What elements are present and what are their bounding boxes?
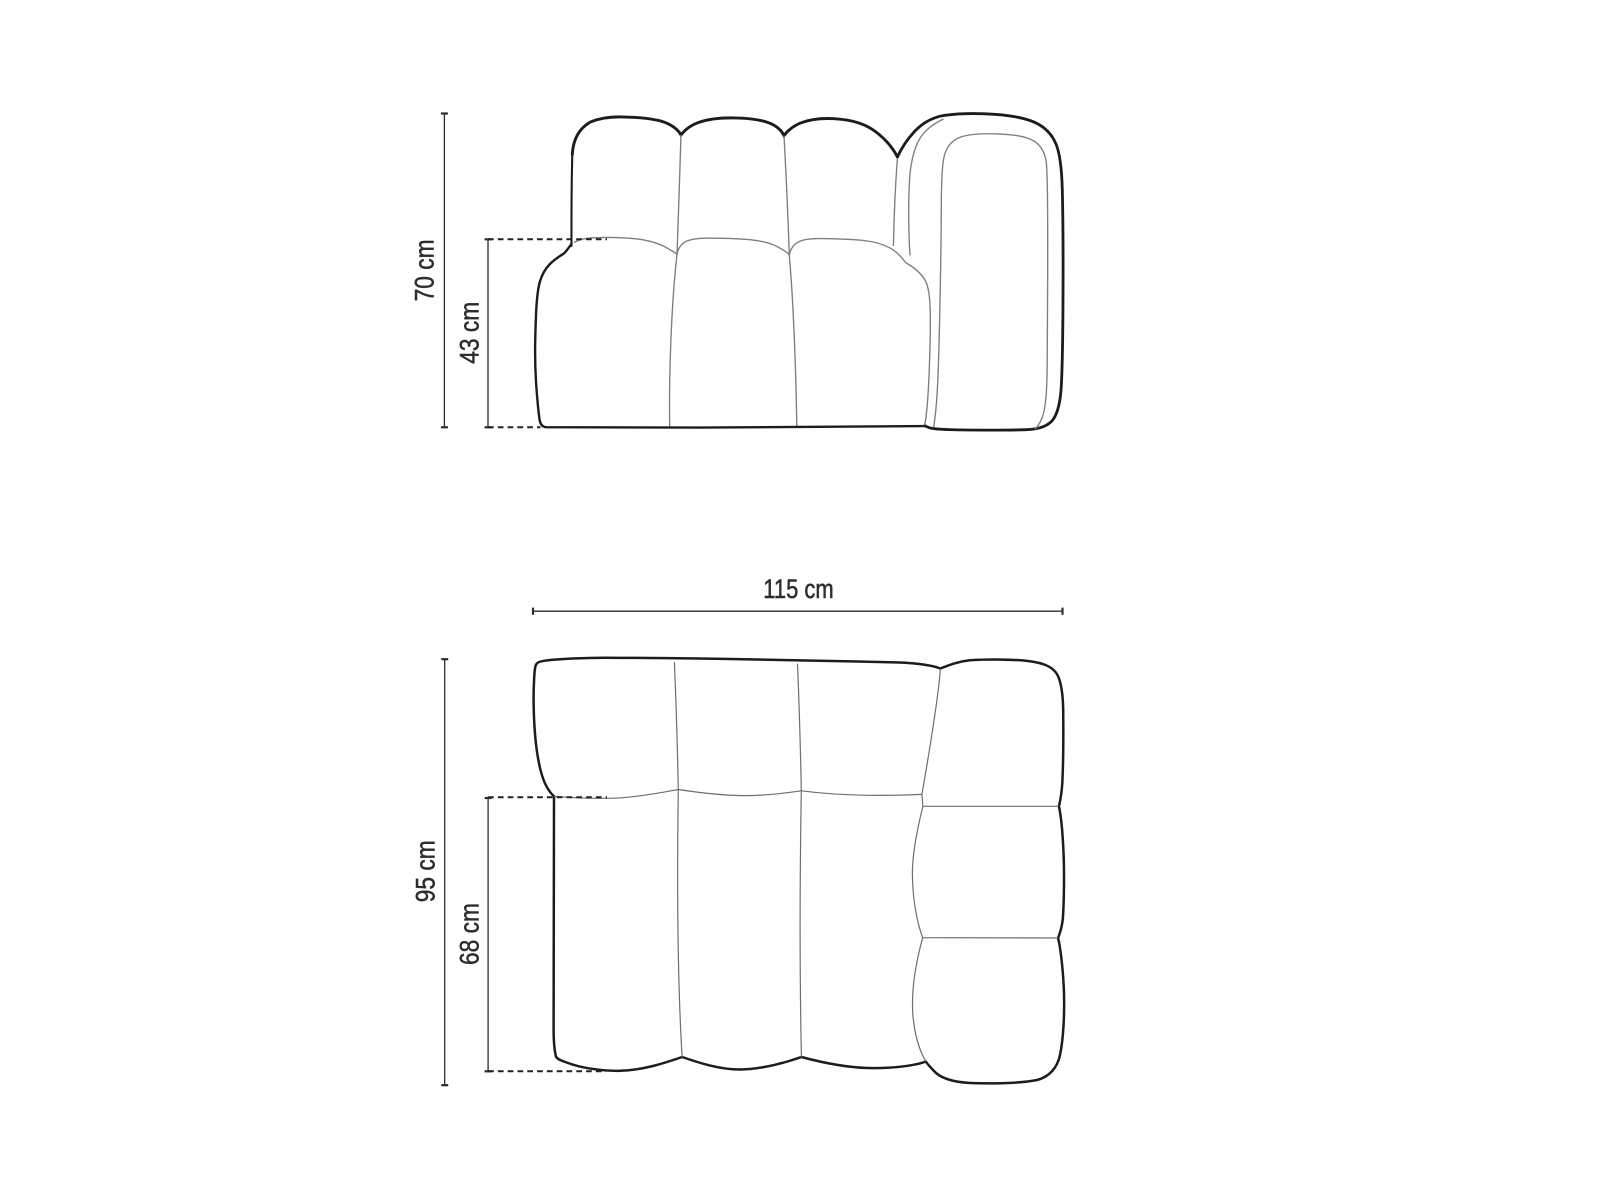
svg-text:115 cm: 115 cm bbox=[763, 574, 834, 604]
svg-text:70 cm: 70 cm bbox=[410, 239, 440, 301]
svg-text:95 cm: 95 cm bbox=[410, 840, 440, 902]
svg-text:68 cm: 68 cm bbox=[455, 903, 485, 965]
svg-text:43 cm: 43 cm bbox=[455, 302, 485, 364]
